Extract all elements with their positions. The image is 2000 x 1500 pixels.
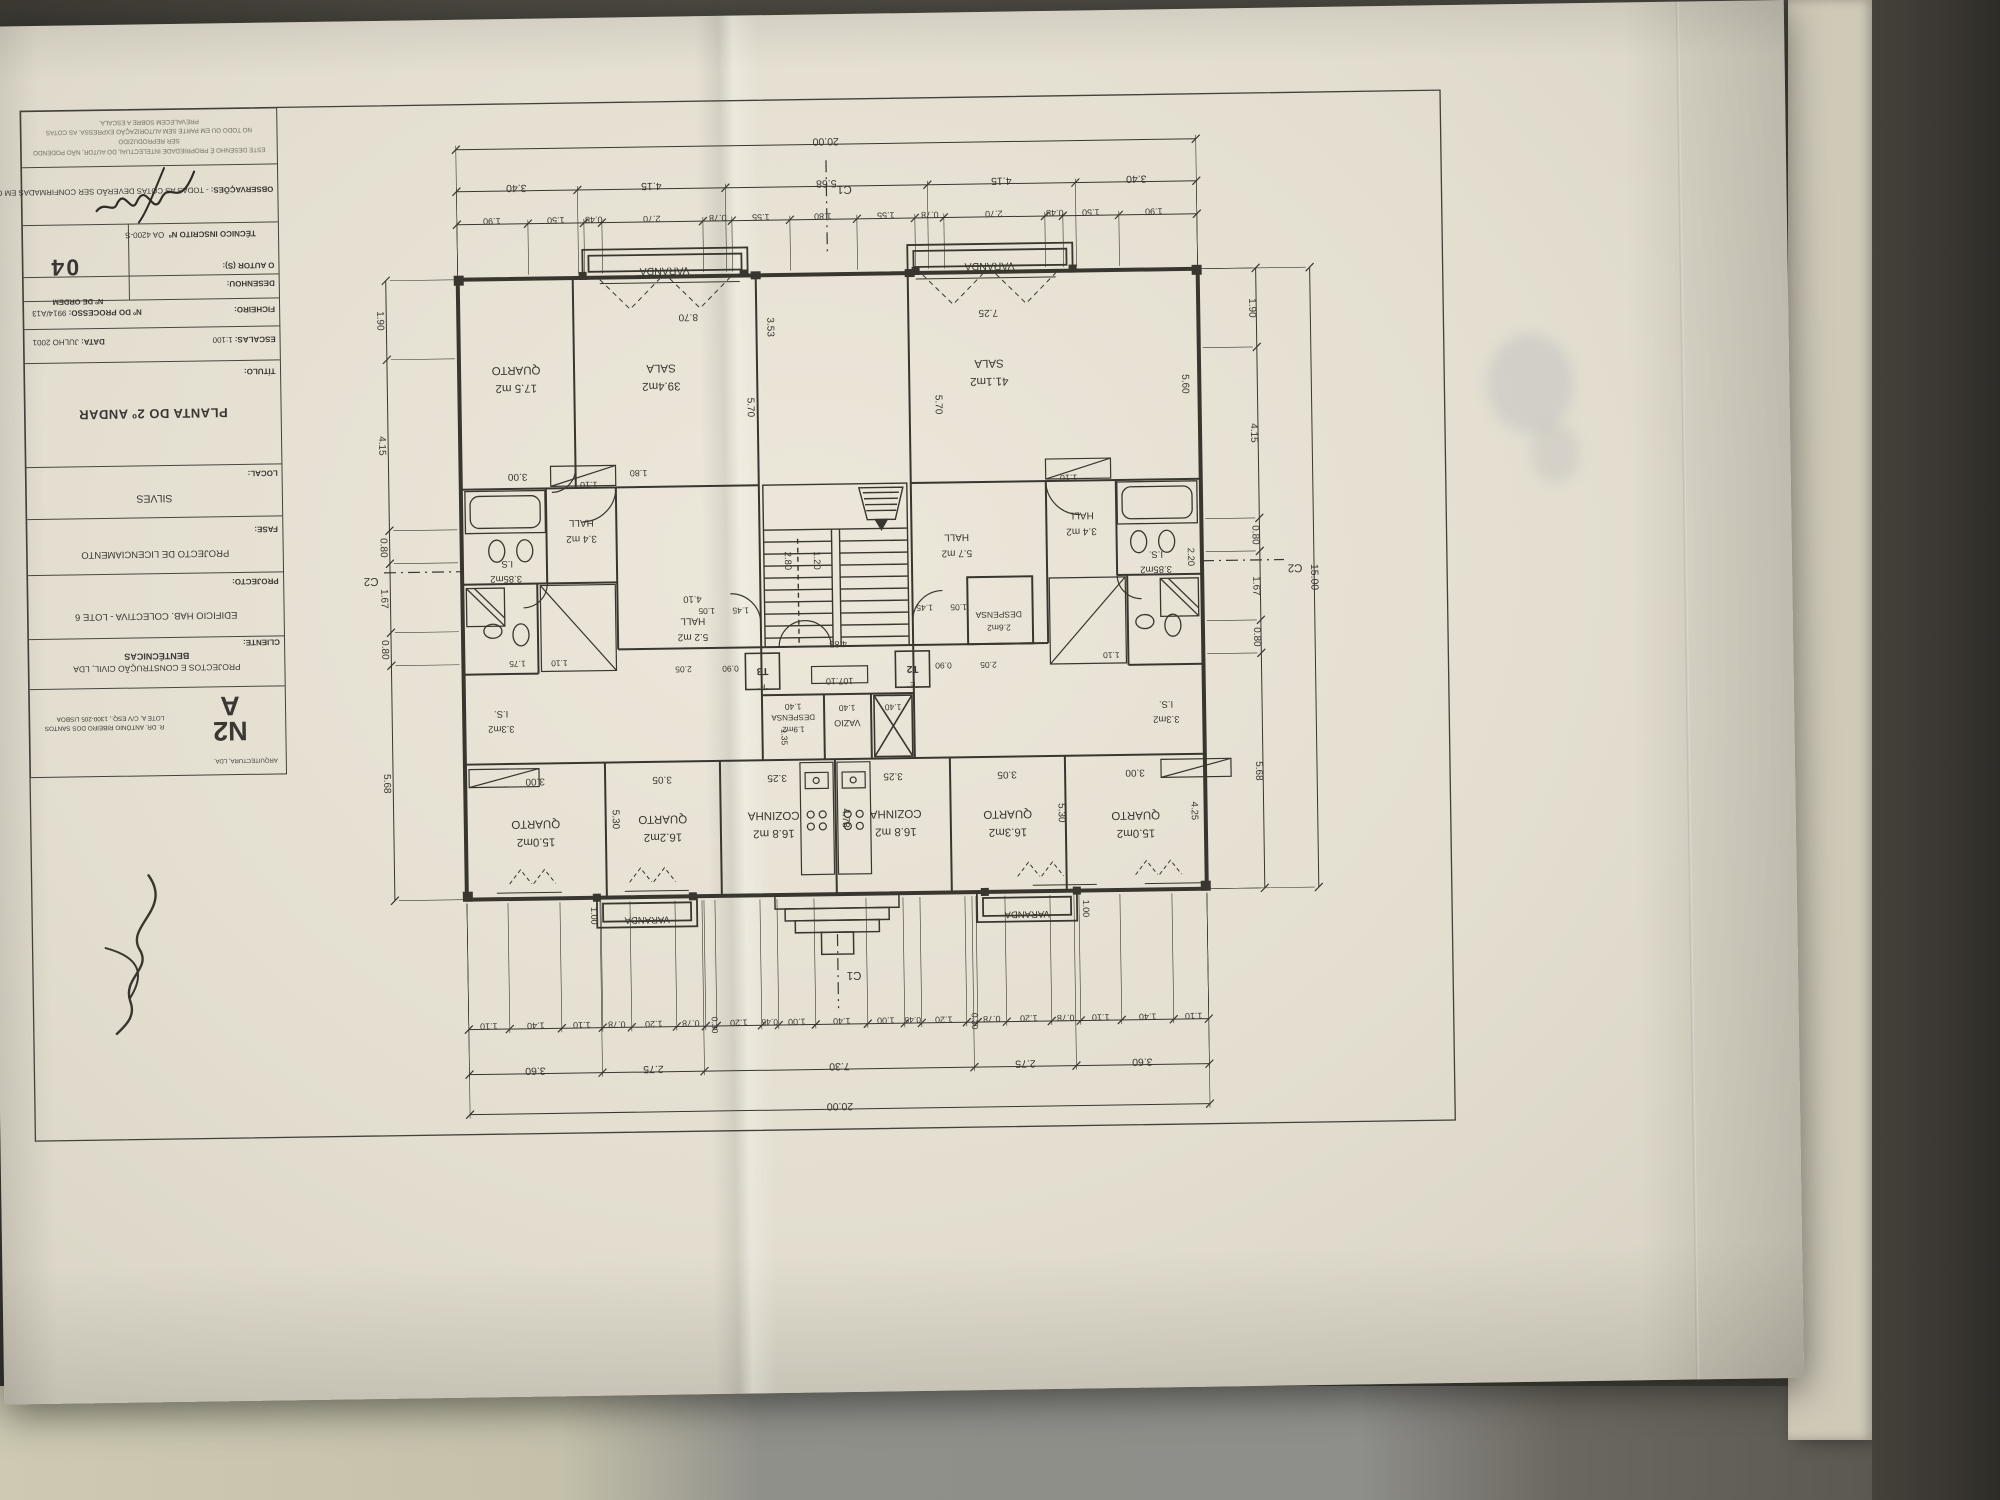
dim-text: 1.00 bbox=[589, 907, 599, 925]
dim-side: 5.68 bbox=[1253, 761, 1264, 781]
dim-text: 3.25 bbox=[883, 770, 903, 781]
dim-text: 5.30 bbox=[610, 810, 621, 830]
dim-detail: 1.20 bbox=[1020, 1013, 1038, 1023]
escala-label: ESCALAS: bbox=[235, 334, 276, 344]
room-label: I.S. bbox=[494, 708, 508, 719]
dim-text: 0.90 bbox=[935, 660, 952, 670]
dim-side: 4.15 bbox=[1248, 423, 1259, 443]
room-label-varanda-top-right: VARANDA bbox=[964, 259, 1014, 272]
dim-text: 2.05 bbox=[980, 660, 997, 670]
dim-detail: 1.00 bbox=[877, 1015, 895, 1025]
title-block-divider bbox=[26, 463, 281, 468]
dim-group: 3.40 bbox=[506, 182, 527, 194]
dim-side: 1.67 bbox=[1250, 576, 1261, 596]
dim-detail: 0.30 bbox=[970, 1013, 980, 1030]
room-area: 5.2 m2 bbox=[677, 631, 708, 642]
dim-text: 1.10 bbox=[580, 480, 598, 490]
logo-subtitle: ARQUITECTURA, LDA. bbox=[214, 756, 278, 763]
section-marker-c1-bottom: C1 bbox=[847, 969, 862, 981]
dim-total-top: 20.00 bbox=[812, 135, 839, 147]
table-surface bbox=[0, 1386, 2000, 1500]
dim-text: 3.53 bbox=[764, 317, 775, 337]
dim-text: 5.70 bbox=[932, 395, 943, 415]
room-area: 15.0m2 bbox=[517, 835, 556, 848]
dim-detail: 0.45 bbox=[761, 1017, 778, 1027]
room-area: 17.5 m2 bbox=[495, 382, 537, 395]
dim-text: 1.45 bbox=[916, 603, 933, 613]
data-row: DATA: JULHO 2001 bbox=[33, 337, 105, 347]
dim-detail: 0.78 bbox=[709, 213, 727, 223]
dim-group: 4.15 bbox=[991, 175, 1012, 187]
dim-side: 1.67 bbox=[378, 589, 389, 609]
section-marker-c2-right: C2 bbox=[1288, 561, 1303, 573]
room-label: DESPENSA bbox=[771, 712, 815, 722]
dim-text: 3.00 bbox=[525, 776, 545, 787]
room-label: I.S. bbox=[1149, 548, 1163, 559]
dim-text: 4.85 bbox=[829, 639, 847, 649]
dim-side: 0.80 bbox=[378, 538, 389, 558]
apartment-tag-t2: T2 bbox=[906, 663, 918, 674]
title-block-divider bbox=[30, 685, 285, 690]
fine-print-line: ESTE DESENHO É PROPRIEDADE INTELECTUAL D… bbox=[26, 134, 273, 157]
dim-detail: 1.40 bbox=[833, 1016, 851, 1026]
dim-text: 1.80 bbox=[630, 468, 648, 478]
dim-text: 4.25 bbox=[1189, 802, 1200, 821]
fine-print: ESTE DESENHO É PROPRIEDADE INTELECTUAL D… bbox=[25, 114, 273, 157]
projecto-value: EDIFICIO HAB. COLECTIVA - LOTE 6 bbox=[35, 608, 278, 623]
dim-text: 1.40 bbox=[784, 702, 801, 712]
room-area: 41.1m2 bbox=[970, 375, 1009, 388]
desenhou-label: DESENHOU: bbox=[227, 278, 275, 288]
apartment-tag-t3: T3 bbox=[756, 665, 768, 676]
cliente-value-line2: PROJECTOS E CONSTRUÇÃO CIVIL, LDA bbox=[35, 661, 278, 675]
room-label: I.S. bbox=[1159, 698, 1173, 709]
dim-text: 4.78 bbox=[840, 808, 851, 828]
ordem-label: Nº DE ORDEM bbox=[28, 297, 128, 307]
room-label: HALL bbox=[944, 531, 970, 542]
room-label-varanda-bottom-right: VARANDA bbox=[1004, 908, 1050, 920]
fine-print-line: NO TODO OU EM PARTE SEM AUTORIZAÇÃO EXPR… bbox=[25, 114, 272, 137]
titulo-value: PLANTA DO 2º ANDAR bbox=[32, 404, 275, 423]
room-area: 3.85m2 bbox=[1140, 563, 1172, 574]
dim-side: 1.90 bbox=[374, 311, 385, 331]
dim-detail: 0.78 bbox=[983, 1014, 1001, 1024]
dim-text: 5.60 bbox=[1179, 374, 1190, 394]
dim-detail: 1.20 bbox=[645, 1019, 663, 1029]
ordem-value: 04 bbox=[49, 253, 79, 280]
room-label-varanda-bottom-left: VARANDA bbox=[624, 914, 670, 926]
address-line1: R. DR. ANTÓNIO RIBEIRO DOS SANTOS bbox=[36, 722, 164, 733]
dim-detail: 1.00 bbox=[788, 1017, 806, 1027]
author-signature bbox=[86, 159, 207, 227]
dim-detail: 1.40 bbox=[1139, 1011, 1157, 1021]
room-label: HALL bbox=[568, 517, 594, 528]
processo-row: Nº DO PROCESSO: 9914/A13 bbox=[32, 307, 142, 318]
room-label: SALA bbox=[646, 362, 676, 374]
room-area: 16.3m2 bbox=[989, 825, 1028, 838]
dim-text: 2.20 bbox=[1185, 548, 1196, 567]
room-area: 3.85m2 bbox=[490, 573, 522, 584]
title-block-divider bbox=[24, 325, 279, 330]
dim-text: 1.10 bbox=[1103, 650, 1120, 660]
dim-detail: 1.55 bbox=[752, 212, 770, 222]
projecto-label: PROJECTO: bbox=[233, 576, 280, 586]
dim-detail: 1.90 bbox=[1145, 206, 1163, 216]
dim-side: 4.15 bbox=[376, 436, 387, 456]
room-area: 3.3m2 bbox=[488, 723, 515, 734]
dim-text: 0.90 bbox=[722, 664, 739, 674]
dim-text: 1.45 bbox=[732, 605, 749, 615]
dim-detail: 1.10 bbox=[573, 1020, 591, 1030]
dim-detail: 1.50 bbox=[1082, 207, 1100, 217]
escala-value: 1:100 bbox=[212, 335, 232, 344]
room-label: QUARTO bbox=[492, 364, 541, 377]
dim-detail: 0.78 bbox=[1057, 1013, 1075, 1023]
dim-detail: 1.55 bbox=[877, 210, 895, 220]
photo-of-floor-plan: VARANDAVARANDAQUARTO17.5 m2SALA39.4m2SAL… bbox=[0, 0, 2000, 1500]
dim-group: 3.40 bbox=[1126, 173, 1147, 185]
dim-detail: 1.50 bbox=[547, 215, 565, 225]
room-label: SALA bbox=[974, 357, 1004, 369]
tecnico-value: OA 4200-S bbox=[125, 230, 164, 240]
room-label: COZINHA bbox=[747, 809, 799, 822]
room-label: I.S. bbox=[499, 558, 513, 569]
dim-detail: 0.78 bbox=[608, 1019, 626, 1029]
data-value: JULHO 2001 bbox=[33, 337, 79, 347]
cliente-label: CLIENTE: bbox=[243, 637, 280, 647]
dim-detail: 1.10 bbox=[1092, 1012, 1110, 1022]
pen-scribble bbox=[76, 869, 199, 1041]
dim-detail: 2.70 bbox=[643, 214, 661, 224]
dim-side: 0.80 bbox=[1249, 525, 1260, 545]
address-line2: LOTE A, C/V ESQ., 1300-205 LISBOA bbox=[36, 712, 164, 723]
title-block-divider bbox=[25, 359, 280, 364]
dim-detail: 0.78 bbox=[682, 1018, 700, 1028]
room-area: 16.8 m2 bbox=[875, 825, 917, 838]
dim-detail: 1.90 bbox=[483, 216, 501, 226]
dim-text: 2.05 bbox=[675, 664, 692, 674]
dim-side: 0.80 bbox=[1251, 627, 1262, 647]
dim-text: 1.40 bbox=[838, 703, 855, 713]
dim-text: 1.20 bbox=[811, 551, 822, 570]
dim-detail: 0.48 bbox=[585, 215, 603, 225]
n2a-logo: N2 A bbox=[197, 693, 264, 744]
dim-detail: 0.48 bbox=[1046, 208, 1064, 218]
title-block-divider bbox=[27, 515, 282, 520]
dim-detail: 1.20 bbox=[935, 1014, 953, 1024]
dim-group: 3.60 bbox=[1132, 1056, 1153, 1068]
background-right-edge bbox=[1872, 0, 2000, 1500]
dim-text: 7.25 bbox=[978, 307, 998, 318]
dim-text: 3.05 bbox=[997, 769, 1017, 780]
dim-detail: 2.70 bbox=[985, 209, 1003, 219]
data-label: DATA: bbox=[81, 337, 105, 346]
dim-detail: 1.10 bbox=[1185, 1011, 1203, 1021]
section-marker-c2-left: C2 bbox=[364, 575, 379, 587]
room-area: 2.6m2 bbox=[987, 623, 1011, 633]
fase-value: PROJECTO DE LICENCIAMENTO bbox=[34, 546, 277, 561]
dim-text: 1.40 bbox=[884, 702, 901, 712]
dim-side: 5.68 bbox=[381, 774, 392, 794]
dim-detail: 1.80 bbox=[814, 211, 832, 221]
room-area: 15.0m2 bbox=[1117, 826, 1156, 839]
dim-text: 3.00 bbox=[507, 471, 527, 482]
observacoes-label: OBSERVAÇÕES: bbox=[211, 184, 274, 194]
dim-side: 1.90 bbox=[1246, 298, 1257, 318]
room-label: QUARTO bbox=[638, 812, 687, 825]
level-badge: 107.10 bbox=[826, 676, 854, 686]
room-area: 3.3m2 bbox=[1153, 713, 1180, 724]
apartment-tag-t3-letter: "F" bbox=[757, 682, 768, 692]
dim-total-bottom: 20.00 bbox=[827, 1100, 854, 1112]
tecnico-row: TÉCNICO INSCRITO Nº OA 4200-S bbox=[107, 228, 274, 239]
processo-value: 9914/A13 bbox=[32, 309, 66, 319]
fase-label: FASE: bbox=[255, 524, 279, 533]
room-area: 3.4 m2 bbox=[1066, 525, 1097, 536]
dim-group: 2.75 bbox=[1015, 1057, 1036, 1069]
trash-chute bbox=[859, 487, 904, 530]
dim-text: 1.05 bbox=[698, 606, 715, 616]
room-area: 5.7 m2 bbox=[941, 547, 972, 558]
autor-label: O AUTOR (S): bbox=[222, 260, 274, 270]
titulo-label: TÍTULO: bbox=[244, 366, 276, 375]
room-area: 39.4m2 bbox=[642, 379, 681, 392]
dim-text: 3.05 bbox=[652, 774, 672, 785]
dim-detail: 1.20 bbox=[730, 1018, 748, 1028]
dim-text: 2.80 bbox=[782, 552, 793, 571]
dim-group: 3.60 bbox=[525, 1065, 546, 1077]
architect-address: R. DR. ANTÓNIO RIBEIRO DOS SANTOS LOTE A… bbox=[36, 712, 164, 733]
dim-group: 4.15 bbox=[641, 180, 662, 192]
dim-text: 3.25 bbox=[767, 772, 787, 783]
dim-text: 5.30 bbox=[1056, 803, 1067, 823]
room-label: COZINHA bbox=[869, 807, 921, 820]
room-area: 3.4 m2 bbox=[566, 533, 597, 544]
logo-line1: N2 bbox=[197, 718, 263, 744]
dim-text: 1.35 bbox=[779, 729, 789, 746]
drawing-sheet: VARANDAVARANDAQUARTO17.5 m2SALA39.4m2SAL… bbox=[0, 0, 1804, 1405]
room-label: QUARTO bbox=[1111, 808, 1160, 821]
room-label-vazio: VAZIO bbox=[834, 718, 860, 728]
dim-group: 5.68 bbox=[816, 177, 837, 189]
room-label: DESPENSA bbox=[975, 609, 1022, 620]
dim-detail: 0.30 bbox=[710, 1017, 720, 1034]
logo-line2: A bbox=[197, 693, 263, 719]
dim-side: 0.80 bbox=[379, 640, 390, 660]
dim-detail: 0.45 bbox=[904, 1015, 921, 1025]
local-label: LOCAL: bbox=[247, 468, 277, 477]
tecnico-label: TÉCNICO INSCRITO Nº bbox=[169, 229, 256, 239]
dim-text: 1.10 bbox=[1060, 473, 1078, 483]
ficheiro-label: FICHEIRO: bbox=[234, 304, 275, 314]
room-label: HALL bbox=[1068, 509, 1094, 520]
room-area: 16.2m2 bbox=[644, 830, 683, 843]
processo-label: Nº DO PROCESSO: bbox=[69, 307, 142, 317]
apartment-tag-t2-letter: "E" bbox=[907, 680, 919, 690]
dim-text: 1.10 bbox=[551, 658, 568, 668]
dim-text: 5.70 bbox=[744, 398, 755, 418]
dim-side-total: 15.00 bbox=[1308, 564, 1320, 591]
section-marker-c1-top: C1 bbox=[837, 183, 852, 195]
escala-row: ESCALAS: 1:100 bbox=[212, 334, 275, 344]
dim-detail: 0.78 bbox=[921, 210, 939, 220]
dim-group: 7.30 bbox=[829, 1060, 850, 1072]
room-area: 16.8 m2 bbox=[753, 827, 795, 840]
dim-text: 1.05 bbox=[950, 602, 967, 612]
dim-text: 1.00 bbox=[1081, 900, 1091, 918]
dim-group: 2.75 bbox=[643, 1063, 664, 1075]
local-value: SILVES bbox=[33, 490, 276, 506]
room-label: QUARTO bbox=[511, 817, 560, 830]
room-label-varanda-top-left: VARANDA bbox=[640, 264, 690, 277]
dim-text: 8.70 bbox=[678, 311, 698, 322]
dim-detail: 1.10 bbox=[480, 1021, 498, 1031]
title-block-divider bbox=[28, 571, 283, 576]
room-label: QUARTO bbox=[983, 807, 1032, 820]
dim-text: 4.10 bbox=[683, 593, 702, 604]
dim-detail: 1.40 bbox=[527, 1021, 545, 1031]
dim-text: 3.00 bbox=[1125, 767, 1145, 778]
dim-text: 1.75 bbox=[509, 659, 526, 669]
